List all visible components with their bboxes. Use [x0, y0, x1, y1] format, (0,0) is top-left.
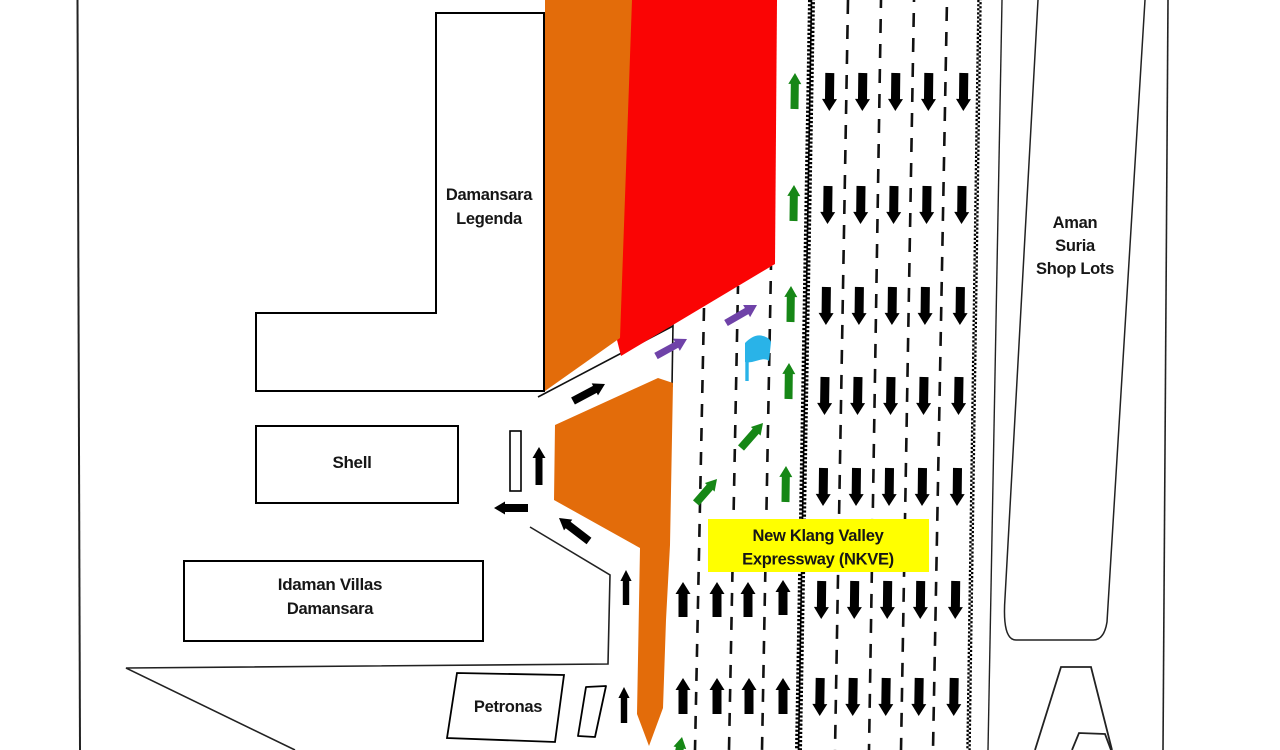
- svg-text:New Klang Valley: New Klang Valley: [753, 527, 885, 545]
- svg-text:Expressway (NKVE): Expressway (NKVE): [742, 551, 894, 569]
- svg-text:Suria: Suria: [1055, 237, 1096, 255]
- svg-text:Legenda: Legenda: [456, 210, 523, 228]
- svg-text:Shop Lots: Shop Lots: [1036, 260, 1114, 278]
- svg-text:Shell: Shell: [332, 453, 371, 472]
- svg-text:Damansara: Damansara: [287, 600, 374, 618]
- svg-text:Damansara: Damansara: [446, 186, 533, 204]
- svg-text:Petronas: Petronas: [474, 698, 542, 716]
- svg-text:Aman: Aman: [1053, 214, 1098, 232]
- svg-text:Idaman Villas: Idaman Villas: [278, 575, 382, 594]
